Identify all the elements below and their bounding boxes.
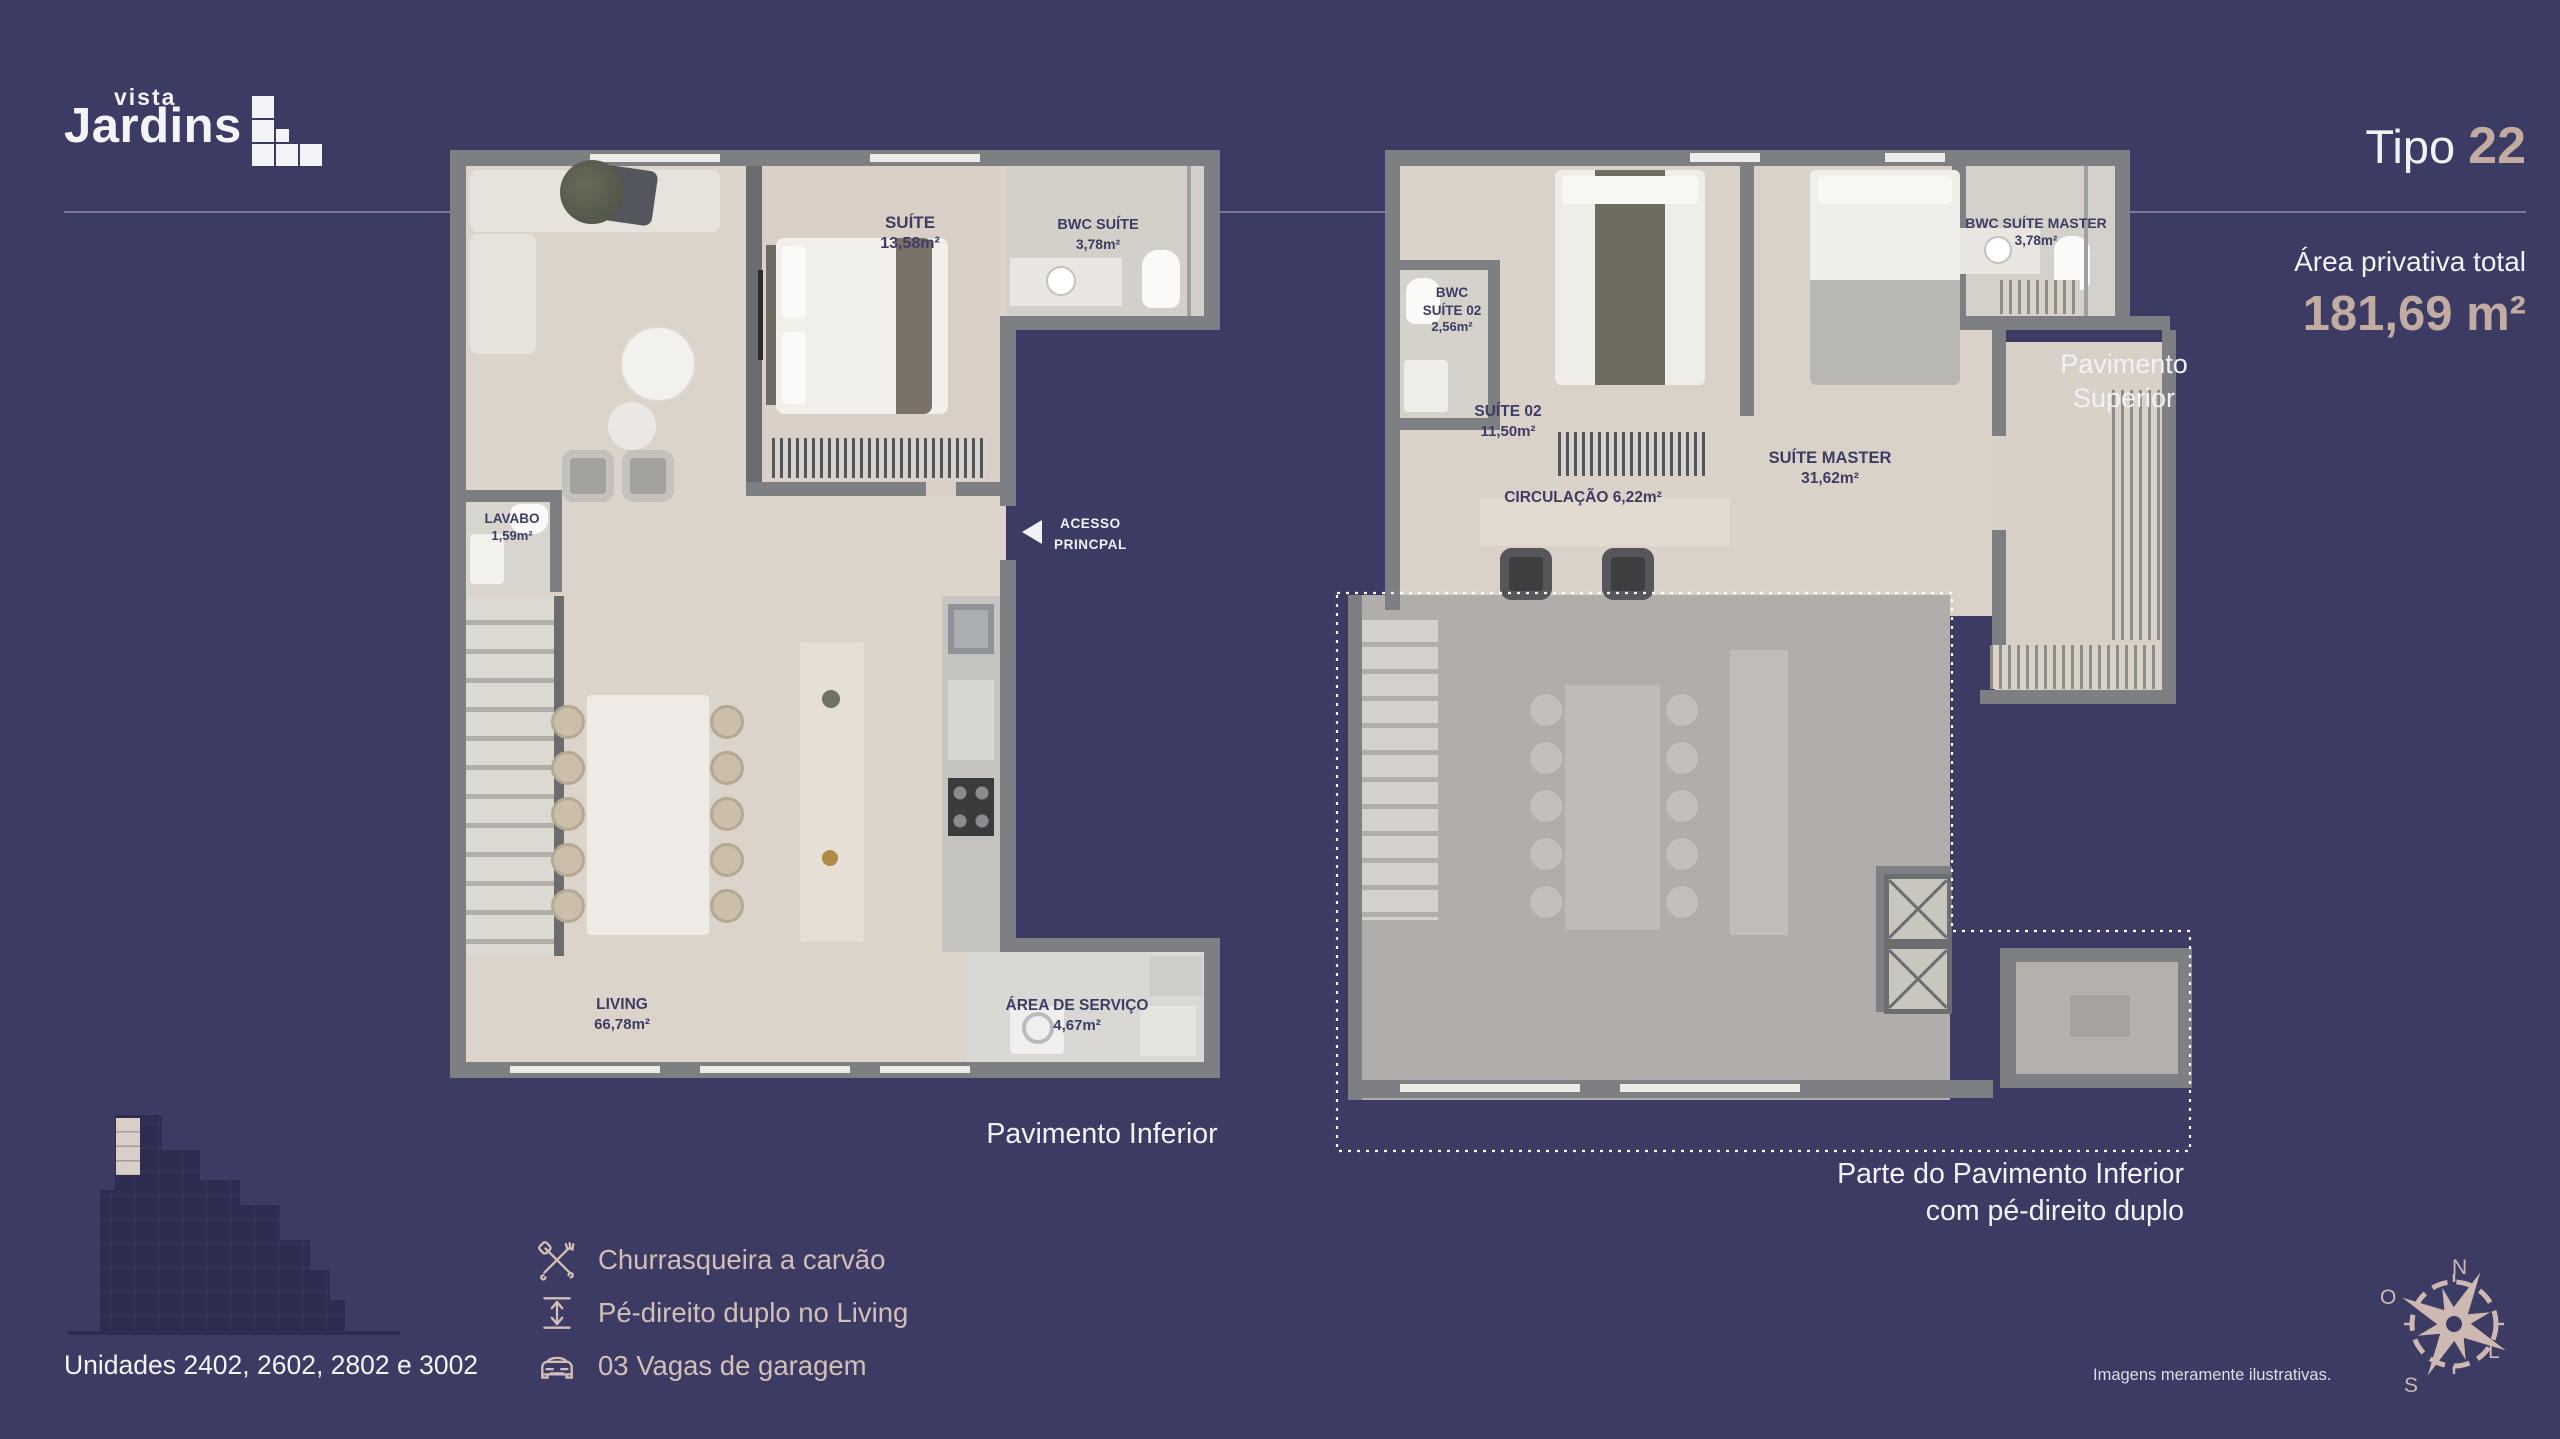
caption-pavimento-superior: Pavimento Superior [2044,348,2204,416]
bed-headboard [766,245,776,405]
caption-pavimento-inferior: Pavimento Inferior [986,1118,1217,1151]
fridge [948,680,994,760]
wall [1992,316,2006,436]
private-area-box: Área privativa total 181,69 m² [2294,246,2526,342]
plant [560,160,624,224]
amenity-row: Pé-direito duplo no Living [536,1291,908,1335]
island-plant [822,690,840,708]
bbq-icon [536,1239,578,1281]
wall [1000,316,1016,506]
pillow [1818,176,1952,204]
room-label-master: SUÍTE MASTER31,62m² [1769,448,1892,490]
compass-o: O [2380,1286,2396,1310]
wall [1006,316,1220,330]
compass-n: N [2452,1256,2467,1280]
side-table [608,402,656,450]
wall [450,150,1220,166]
units-label: Unidades 2402, 2602, 2802 e 3002 [64,1350,478,1381]
bwc-toilet [1142,250,1180,308]
unit-highlight [116,1118,140,1175]
bed-runner [896,238,932,414]
wall [2115,150,2130,330]
disclaimer-text: Imagens meramente ilustrativas. [2093,1366,2331,1385]
wall [1952,316,2170,330]
stairs [466,596,554,956]
amenity-label: Churrasqueira a carvão [598,1244,885,1276]
room-label-suite02: SUÍTE 0211,50m² [1474,402,1541,442]
arrow-left-icon [1022,520,1042,544]
pillow [782,246,806,318]
wall [550,490,562,592]
room-label-living: LIVING66,78m² [594,995,650,1035]
wall [1000,560,1016,952]
kitchen-sink [948,604,994,654]
window [880,1066,970,1073]
coffee-table [620,326,696,402]
compass-rose: N O L S [2380,1252,2540,1412]
window [1885,153,1945,162]
double-height-dashed-outline [1330,585,2200,1160]
building-mass [62,1105,402,1340]
window [590,154,720,162]
room-label-servico: ÁREA DE SERVIÇO4,67m² [1006,996,1149,1036]
room-label-lavabo: LAVABO1,59m² [485,510,540,544]
building-silhouette [62,1105,402,1340]
wall [1385,150,1400,610]
building-baseline [68,1331,400,1335]
wall [956,482,1000,496]
amenity-label: Pé-direito duplo no Living [598,1297,908,1329]
armchair [562,450,614,502]
closet-top [2000,280,2080,314]
compass-l: L [2488,1340,2500,1364]
window [1690,153,1760,162]
bwc02-sink [1404,360,1448,412]
amenity-row: Churrasqueira a carvão [536,1238,885,1282]
wall [1204,150,1220,330]
wall [1400,260,1500,270]
unit-type-title: Tipo 22 [2365,116,2526,176]
compass-s: S [2404,1374,2418,1398]
brand-logo: vista Jardins [64,84,334,179]
island-decor [822,850,838,866]
wall [1740,166,1754,416]
room-label-bwc-suite: BWC SUÍTE3,78m² [1057,216,1138,253]
amenity-label: 03 Vagas de garagem [598,1350,867,1382]
window [870,154,980,162]
unit-type-prefix: Tipo [2365,120,2468,173]
main-access-marker: ACESSO PRINCPAL [1022,514,1172,564]
brand-name-main: Jardins [64,98,242,154]
amenity-row: 03 Vagas de garagem [536,1344,867,1388]
private-area-label: Área privativa total [2294,246,2526,278]
bench-slats [772,438,987,478]
bwc-sink [1046,266,1076,296]
armchair [622,450,674,502]
wall [746,482,926,496]
bench-slats [1558,432,1708,476]
private-area-value: 181,69 m² [2294,286,2526,342]
stove [948,778,994,836]
sofa-chaise [470,234,536,354]
pillow [782,332,806,404]
floorplan-inferior: SUÍTE13,58m² BWC SUÍTE3,78m² LAVABO1,59m… [450,150,1220,1095]
kitchen-island [800,642,864,942]
laundry-shelf [1150,956,1202,996]
ceiling-height-icon [536,1292,578,1334]
shower-glass [1187,166,1191,316]
room-label-bwcmaster: BWC SUÍTE MASTER3,78m² [1965,214,2107,250]
room-label-circulacao: CIRCULAÇÃO 6,22m² [1504,488,1662,508]
wall [466,490,562,502]
wall [1204,938,1220,1078]
unit-type-number: 22 [2468,117,2526,175]
window [510,1066,660,1073]
dining-table [587,695,709,935]
wall [966,938,1220,952]
room-label-bwc02: BWC SUÍTE 022,56m² [1423,284,1482,336]
double-height-note: Parte do Pavimento Inferior com pé-direi… [1800,1156,2184,1230]
pillow [1562,176,1698,204]
wall [450,150,466,1078]
room-label-suite: SUÍTE13,58m² [880,212,940,255]
tv-panel [758,270,763,360]
master-blanket [1810,280,1960,385]
window [700,1066,850,1073]
car-icon [536,1345,578,1387]
main-access-label: ACESSO PRINCPAL [1054,514,1127,556]
